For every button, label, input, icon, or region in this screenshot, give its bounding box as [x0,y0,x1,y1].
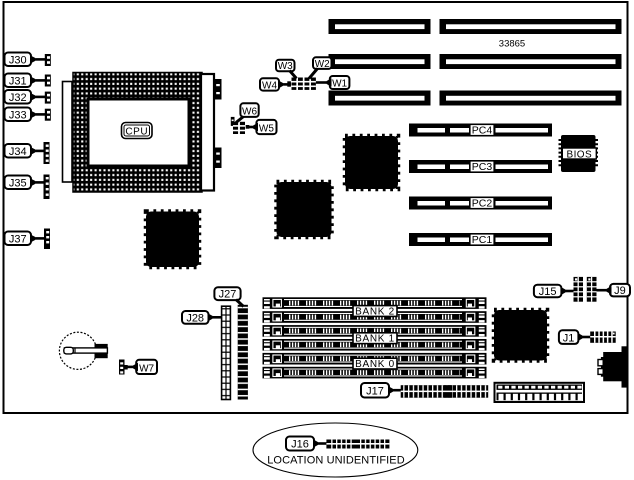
svg-text:CPU: CPU [125,127,148,138]
svg-text:PC1: PC1 [472,234,493,246]
svg-text:33865: 33865 [499,39,525,50]
svg-text:W1: W1 [332,79,347,90]
svg-text:PC2: PC2 [472,198,493,210]
svg-text:PC4: PC4 [472,125,493,137]
svg-text:J35: J35 [9,178,27,190]
svg-text:J16: J16 [291,439,309,451]
svg-text:J33: J33 [9,110,27,122]
svg-text:J27: J27 [219,289,237,301]
svg-text:LOCATION UNIDENTIFIED: LOCATION UNIDENTIFIED [267,455,405,467]
svg-text:BANK 1: BANK 1 [355,334,395,345]
svg-text:J15: J15 [539,286,557,298]
svg-text:W5: W5 [259,123,274,134]
svg-text:J28: J28 [186,312,204,324]
svg-text:J30: J30 [9,55,27,67]
svg-text:J32: J32 [9,92,27,104]
svg-text:BANK 2: BANK 2 [355,306,395,317]
svg-text:W7: W7 [139,363,154,374]
svg-text:W4: W4 [262,80,277,91]
svg-text:J17: J17 [366,386,384,398]
svg-text:BIOS: BIOS [567,149,593,160]
svg-text:J9: J9 [614,285,626,297]
svg-text:J31: J31 [9,76,27,88]
svg-text:BANK 0: BANK 0 [355,359,395,370]
svg-text:J34: J34 [9,146,27,158]
svg-text:W6: W6 [242,106,257,117]
svg-text:J1: J1 [563,332,575,344]
svg-text:J37: J37 [9,234,27,246]
svg-text:PC3: PC3 [472,161,493,173]
